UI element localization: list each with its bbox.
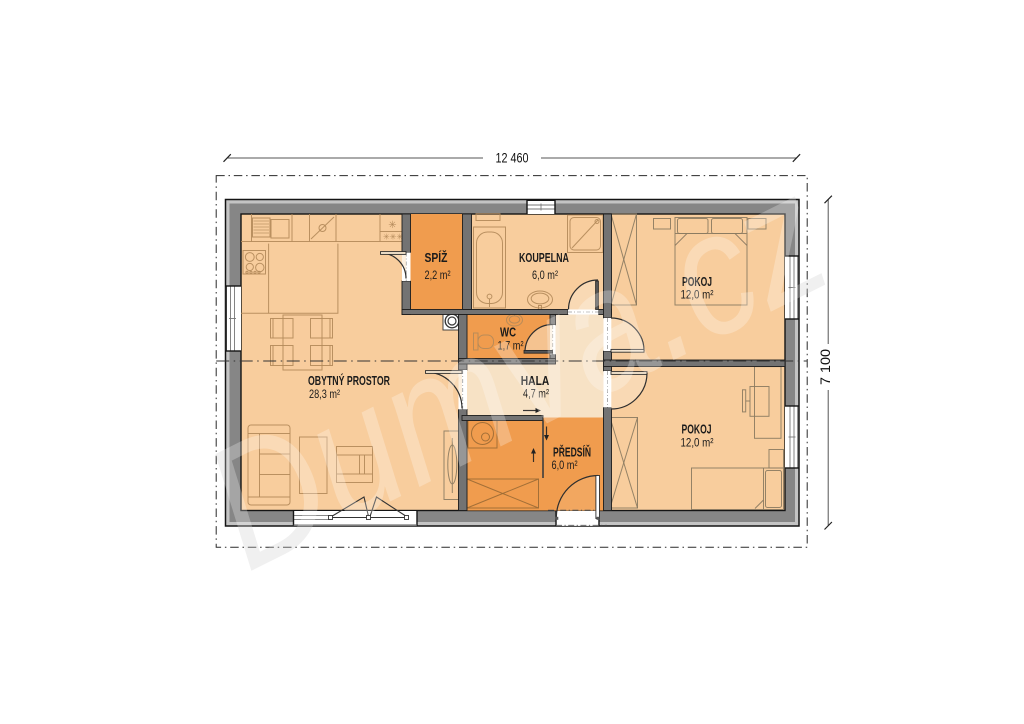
svg-text:12,0 m²: 12,0 m² bbox=[681, 436, 714, 450]
svg-text:2,2 m²: 2,2 m² bbox=[425, 268, 451, 282]
svg-text:✳: ✳ bbox=[388, 220, 396, 231]
svg-text:SPÍŽ: SPÍŽ bbox=[425, 250, 448, 265]
svg-text:POKOJ: POKOJ bbox=[682, 423, 712, 437]
svg-text:✳✳✳: ✳✳✳ bbox=[383, 233, 403, 242]
svg-text:7 100: 7 100 bbox=[817, 349, 833, 385]
svg-text:12 460: 12 460 bbox=[496, 150, 529, 166]
